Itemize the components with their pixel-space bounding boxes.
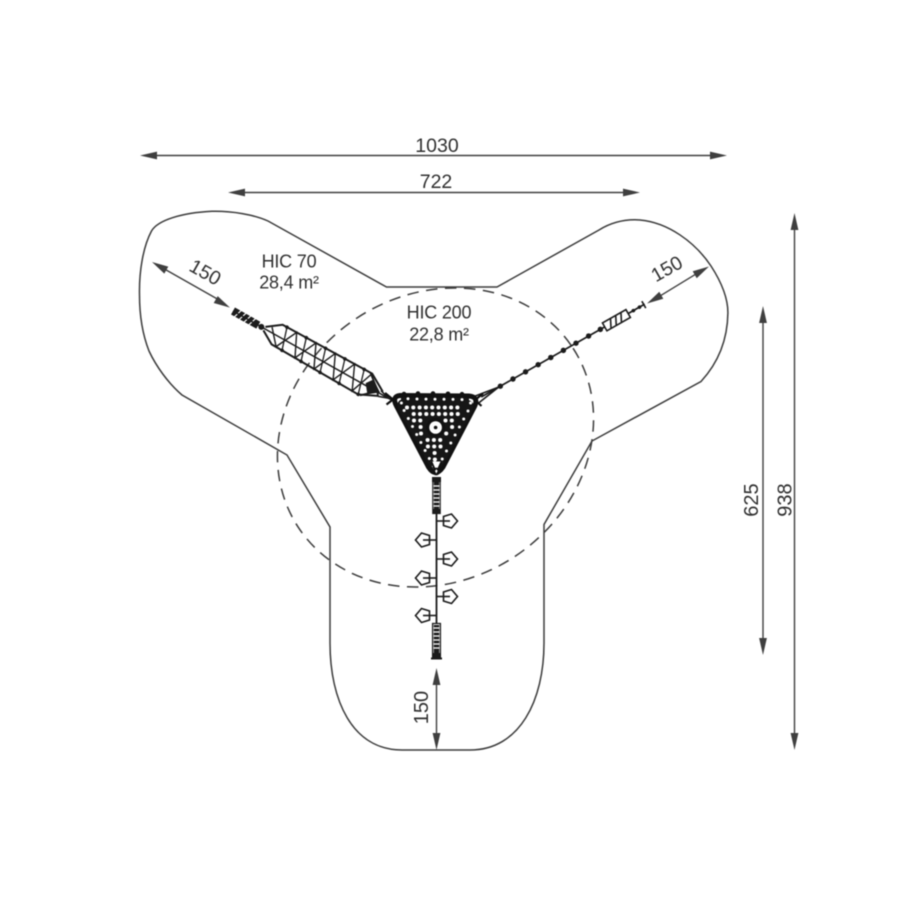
svg-text:HIC 200: HIC 200	[407, 303, 472, 323]
svg-text:HIC 70: HIC 70	[262, 252, 317, 272]
svg-text:28,4 m²: 28,4 m²	[259, 273, 319, 293]
svg-text:1030: 1030	[415, 135, 459, 157]
svg-text:625: 625	[741, 483, 763, 516]
svg-text:938: 938	[775, 483, 797, 516]
svg-text:722: 722	[420, 171, 453, 193]
svg-text:150: 150	[411, 691, 433, 724]
svg-text:22,8 m²: 22,8 m²	[409, 325, 469, 345]
